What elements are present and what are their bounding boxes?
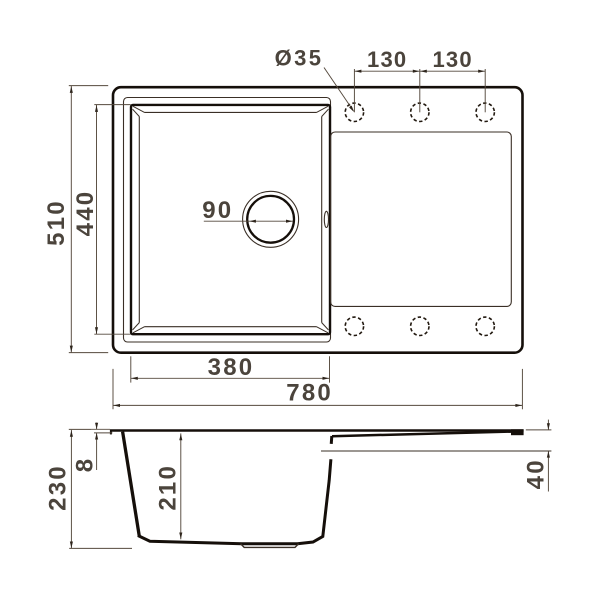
svg-text:230: 230 bbox=[44, 464, 71, 511]
svg-text:8: 8 bbox=[72, 457, 99, 473]
svg-text:380: 380 bbox=[208, 354, 255, 381]
svg-text:40: 40 bbox=[523, 458, 550, 489]
svg-text:130: 130 bbox=[432, 47, 472, 72]
svg-text:90: 90 bbox=[202, 197, 233, 224]
svg-text:780: 780 bbox=[286, 380, 333, 407]
svg-text:210: 210 bbox=[154, 464, 181, 511]
svg-text:510: 510 bbox=[43, 199, 70, 246]
svg-text:Ø35: Ø35 bbox=[275, 45, 324, 70]
svg-text:440: 440 bbox=[72, 190, 99, 237]
svg-text:130: 130 bbox=[367, 47, 407, 72]
